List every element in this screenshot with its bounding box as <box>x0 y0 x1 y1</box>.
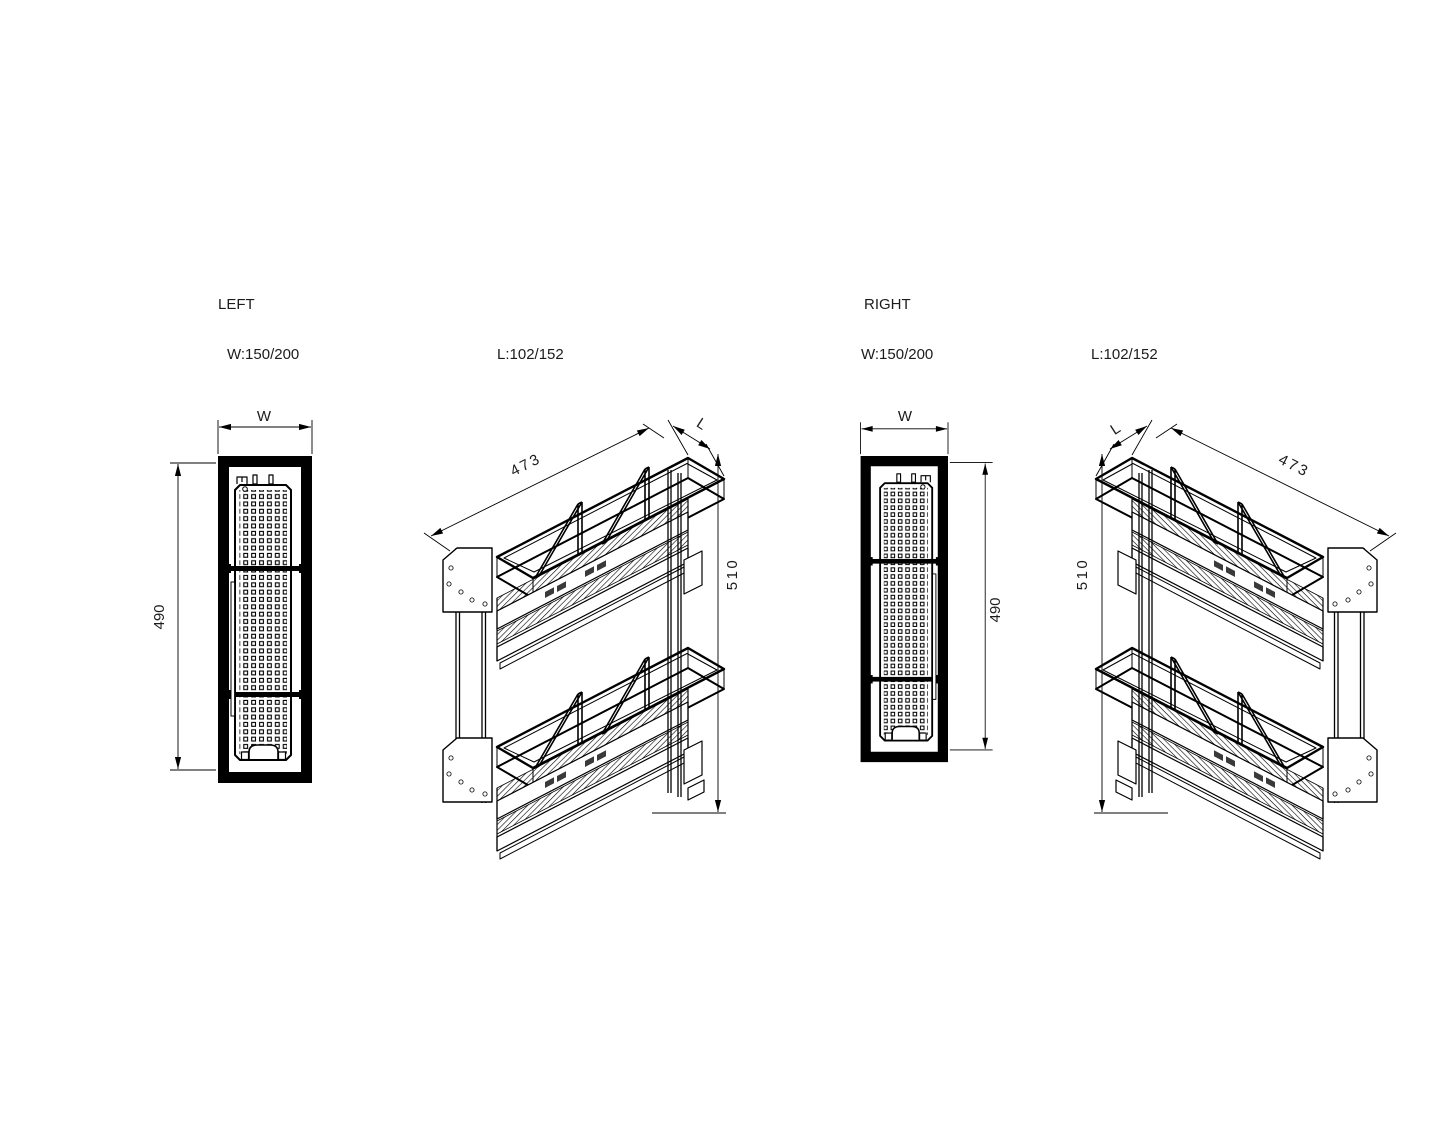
left-iso-view <box>424 420 726 859</box>
pullout-basket-drawing: LEFT W:150/200 L:102/152 W 490 473 L 510… <box>0 0 1432 1131</box>
left-front-height-dim-label: 490 <box>151 604 168 629</box>
left-section-title: LEFT <box>218 296 255 313</box>
right-section-title: RIGHT <box>864 296 911 313</box>
left-length-spec: L:102/152 <box>497 346 564 363</box>
right-front-width-dim-label: W <box>898 408 913 425</box>
left-front-view <box>170 420 312 783</box>
right-iso-depth-dim-label: L <box>1107 420 1123 439</box>
technical-drawing-canvas: LEFT W:150/200 L:102/152 W 490 473 L 510… <box>0 0 1432 1131</box>
right-iso-height-dim-label: 510 <box>1074 558 1091 591</box>
right-front-height-dim-label: 490 <box>987 597 1004 622</box>
left-iso-length-dim-label: 473 <box>508 450 545 480</box>
left-iso-height-dim-label: 510 <box>724 558 741 591</box>
left-width-spec: W:150/200 <box>227 346 299 363</box>
right-iso-length-dim-label: 473 <box>1276 451 1313 481</box>
left-front-width-dim-label: W <box>257 408 272 425</box>
right-width-spec: W:150/200 <box>861 346 933 363</box>
right-front-view <box>861 422 993 762</box>
left-iso-depth-dim-label: L <box>693 415 709 434</box>
right-iso-view <box>1094 420 1396 859</box>
right-length-spec: L:102/152 <box>1091 346 1158 363</box>
